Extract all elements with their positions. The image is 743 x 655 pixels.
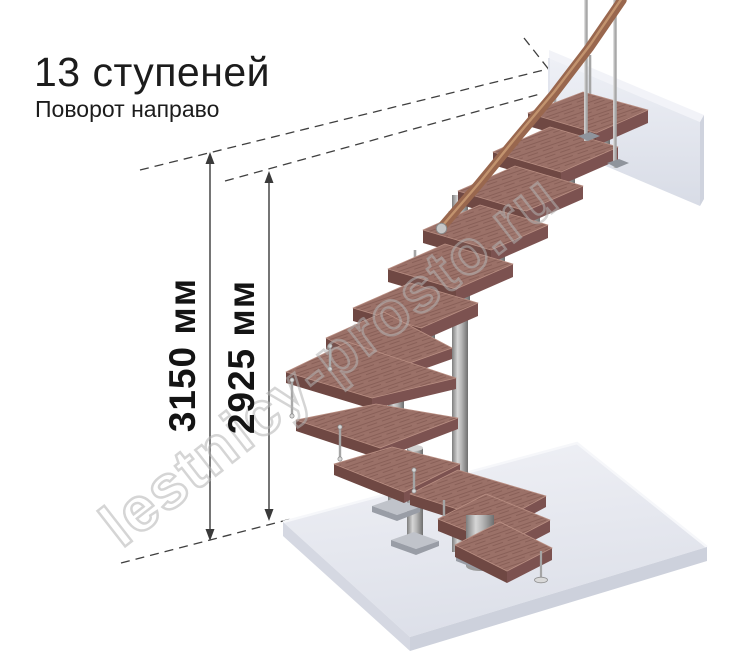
dimension-line-3150: [206, 152, 215, 541]
flight-steps: [353, 92, 648, 341]
extension-line-floor: [121, 519, 291, 563]
dimension-label-stair-height: 2925 мм: [221, 257, 263, 457]
arrow-down-icon: [265, 509, 274, 521]
dimension-line-2925: [265, 171, 274, 521]
dimension-label-total-height: 3150 мм: [162, 255, 204, 455]
arrow-up-icon: [265, 171, 274, 183]
handrail-end-cap: [436, 223, 446, 233]
page-subtitle: Поворот направо: [35, 96, 219, 123]
step-5: [296, 404, 458, 459]
stair-diagram-page: lestnicy-prosto.ru 13 ступеней Поворот н…: [0, 0, 743, 655]
page-title: 13 ступеней: [34, 49, 270, 96]
